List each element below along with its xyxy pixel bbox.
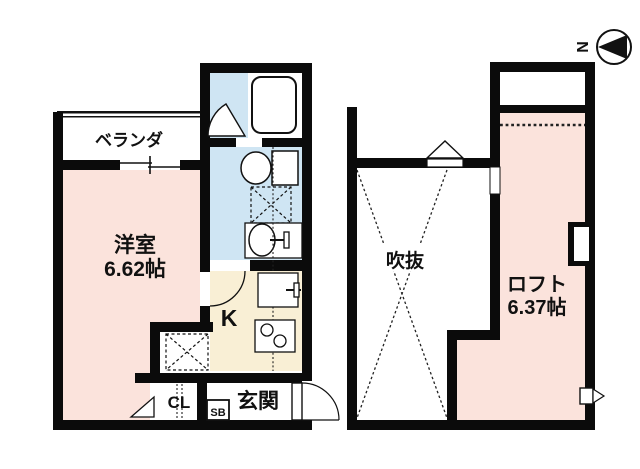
north-label: N (575, 41, 592, 53)
bathtub-icon (252, 77, 296, 133)
floor2-plan: 吹抜 ロフト 6.37帖 (347, 62, 604, 430)
loft-west-window-icon (490, 167, 500, 194)
void-label: 吹抜 (386, 249, 425, 272)
shoebox-label: SB (210, 407, 225, 419)
loft-east-window-icon (568, 222, 595, 266)
veranda-rail-inner (57, 116, 200, 118)
western-room-label: 洋室 (114, 233, 156, 257)
north-compass-icon: N (575, 30, 631, 64)
void-window-icon (427, 141, 463, 167)
veranda-label: ベランダ (95, 130, 163, 150)
veranda-rail-outer (57, 111, 200, 114)
fridge-nook (160, 332, 210, 371)
bath-door-gap (236, 138, 262, 147)
floor1-plan: ベランダ 洋室 6.62帖 K CL SB 玄関 (53, 63, 339, 430)
closet-label: CL (168, 393, 191, 412)
kitchen-label: K (221, 305, 238, 331)
western-room-size: 6.62帖 (104, 258, 166, 281)
floorplan-page: N (0, 0, 640, 469)
floorplan-drawing: N (0, 0, 640, 469)
western-room-area-lower (63, 322, 150, 420)
loft-vent-icon (580, 388, 604, 404)
loft-size: 6.37帖 (508, 296, 567, 319)
entrance-door-icon (292, 383, 339, 420)
entrance-label: 玄関 (237, 389, 279, 413)
void-cross-lines (357, 170, 447, 418)
stove-icon (255, 320, 295, 352)
loft-label: ロフト (507, 274, 567, 296)
kitchen-sink-icon (258, 273, 301, 307)
